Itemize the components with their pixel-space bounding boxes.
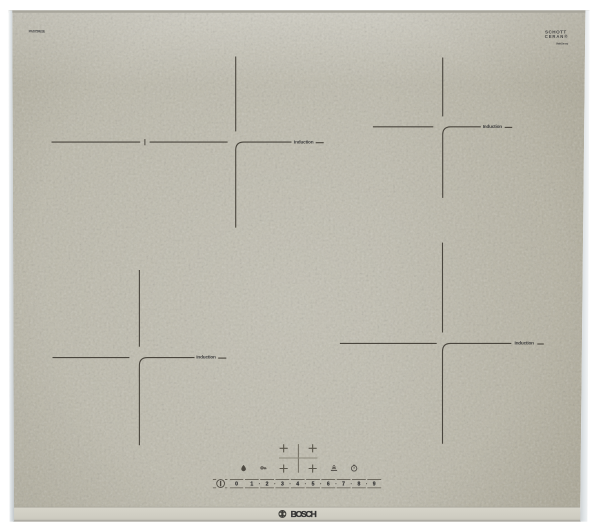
svg-text:5: 5	[312, 482, 315, 488]
svg-text:0: 0	[235, 482, 238, 488]
svg-text:Made in Germany: Made in Germany	[556, 41, 569, 45]
svg-text:Induction: Induction	[483, 124, 503, 129]
svg-text:6: 6	[327, 482, 330, 488]
svg-text:8: 8	[357, 482, 360, 488]
svg-text:BOSCH: BOSCH	[291, 509, 318, 519]
svg-text:1: 1	[250, 482, 253, 488]
svg-text:CERAN®: CERAN®	[545, 34, 569, 39]
svg-text:Induction: Induction	[515, 341, 535, 346]
svg-text:3: 3	[281, 482, 284, 488]
svg-text:Induction: Induction	[196, 355, 216, 360]
svg-text:9: 9	[373, 482, 376, 488]
svg-text:PIV675FB1E: PIV675FB1E	[29, 30, 46, 34]
svg-text:Induction: Induction	[294, 139, 314, 144]
svg-text:7: 7	[342, 482, 345, 488]
svg-text:2: 2	[266, 482, 269, 488]
svg-text:4: 4	[296, 482, 299, 488]
